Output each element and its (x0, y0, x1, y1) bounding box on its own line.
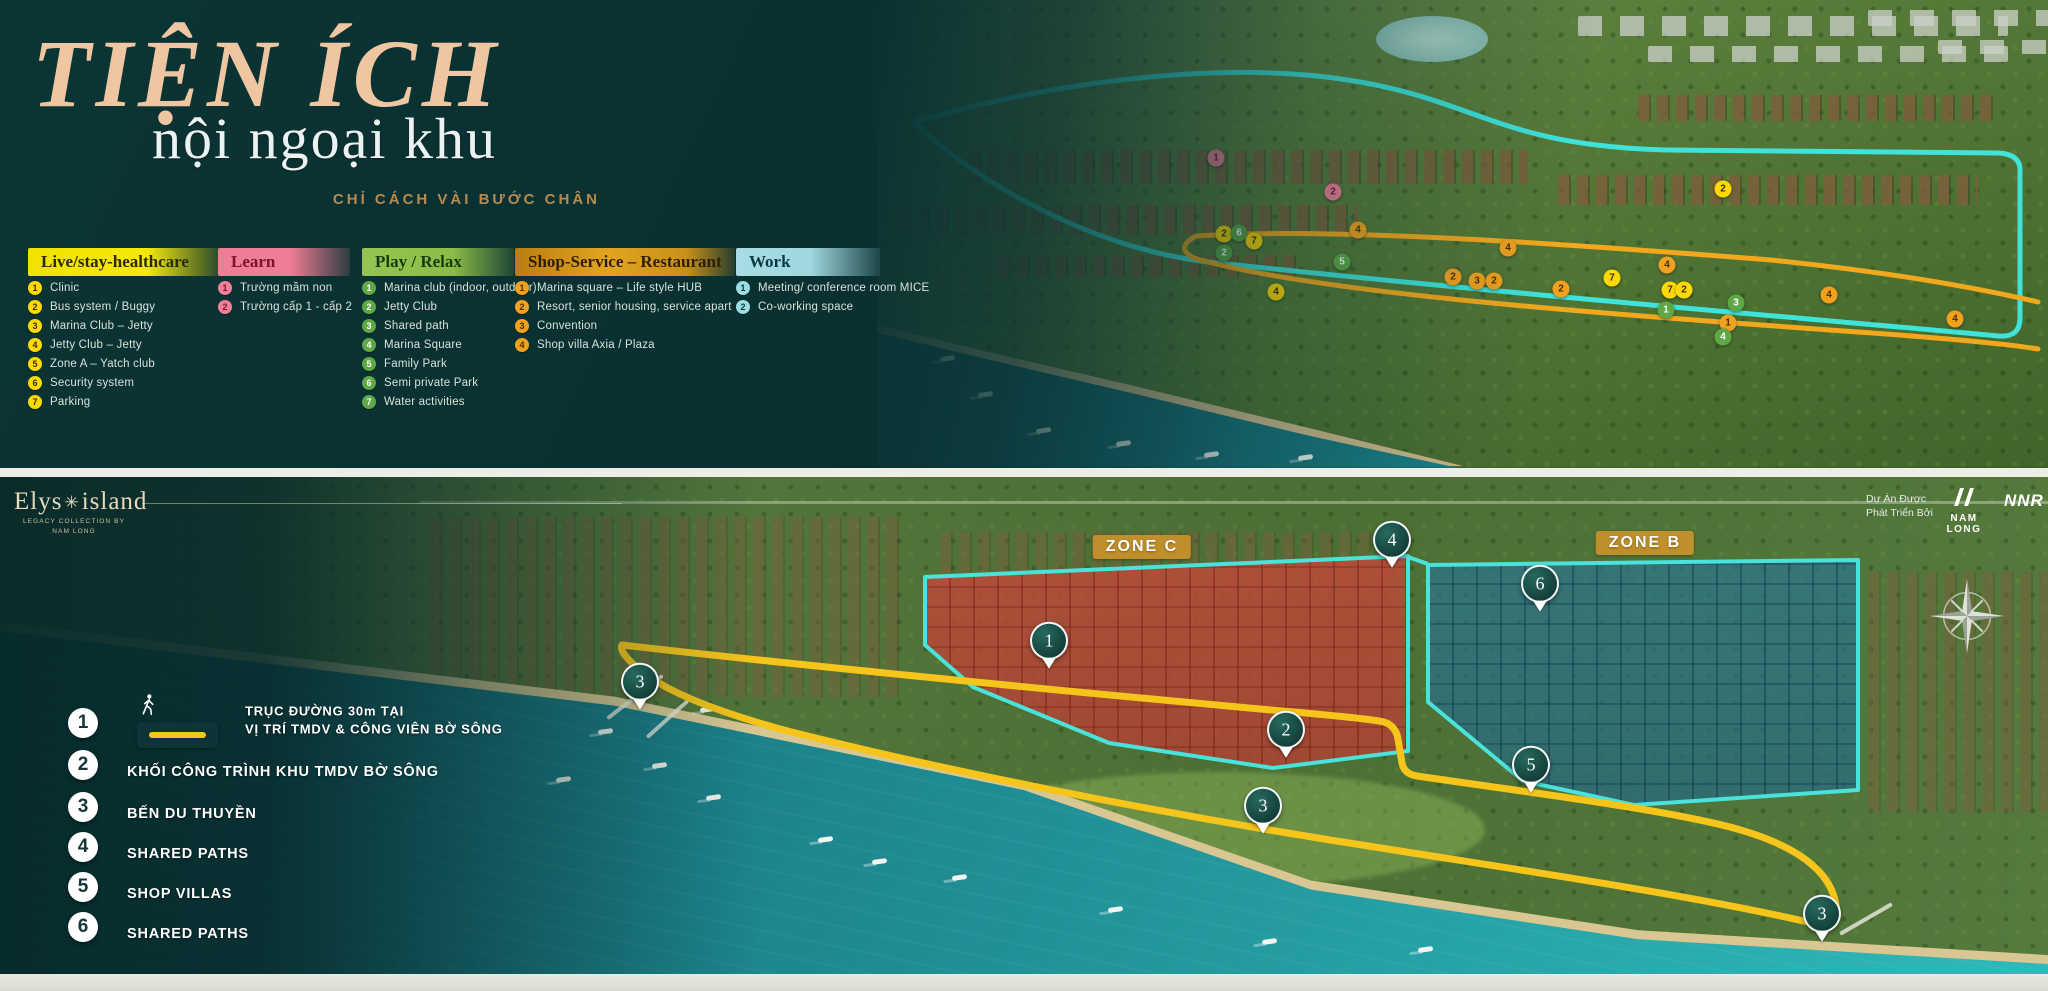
map-marker: 2 (1486, 273, 1503, 290)
legend-item-number: 3 (362, 319, 376, 333)
legend-item: 7Water activities (362, 395, 514, 409)
zone-c-badge: ZONE C (1093, 535, 1191, 559)
legend-item-label: Marina Club – Jetty (50, 320, 153, 332)
legend-item: 3Shared path (362, 319, 514, 333)
legend-item: 6Security system (28, 376, 220, 390)
nam-long-logo: NAM LONG (1932, 487, 1996, 535)
map-pin-tail (1524, 782, 1538, 793)
zone-c-outline (925, 556, 1408, 768)
nam-long-logo-icon (1951, 487, 1977, 507)
map-pin-number: 1 (1030, 622, 1068, 660)
legend-item: 4Marina Square (362, 338, 514, 352)
bottom-legend-number: 6 (68, 912, 98, 942)
project-logo-name: Elys✳island (14, 489, 147, 514)
page-subtitle: nội ngoại khu (152, 110, 497, 168)
legend-item: 4Jetty Club – Jetty (28, 338, 220, 352)
map-marker: 2 (1216, 245, 1233, 262)
bottom-legend-number: 4 (68, 832, 98, 862)
bottom-legend-number: 5 (68, 872, 98, 902)
legend-item-label: Family Park (384, 358, 447, 370)
map-marker: 2 (1325, 184, 1342, 201)
legend-item: 2Resort, senior housing, service apart (515, 300, 735, 314)
bottom-legend-label: TRỤC ĐƯỜNG 30m TẠIVỊ TRÍ TMDV & CÔNG VIÊ… (245, 703, 503, 738)
bottom-legend-label: BẾN DU THUYỀN (127, 806, 257, 822)
legend-item-label: Jetty Club – Jetty (50, 339, 142, 351)
legend-item-number: 4 (28, 338, 42, 352)
map-marker: 5 (1334, 254, 1351, 271)
developer-credit: Dự Án Được Phát Triển Bởi (1866, 493, 1933, 520)
map-pin-tail (1815, 931, 1829, 942)
footer-strip (0, 974, 2048, 991)
legend-item-label: Zone A – Yatch club (50, 358, 155, 370)
masterplan-panel: ZONE C ZONE B 46132353 Elys✳island LEGAC… (0, 477, 2048, 974)
legend-category-play-relax: Play / Relax1Marina club (indoor, outdoo… (362, 248, 514, 409)
map-marker: 4 (1947, 311, 1964, 328)
sun-logo-icon: ✳ (64, 494, 79, 511)
map-marker: 2 (1553, 281, 1570, 298)
legend-category-header: Learn (218, 248, 350, 276)
legend-item: 3Convention (515, 319, 735, 333)
legend-item-number: 2 (28, 300, 42, 314)
legend-item-number: 4 (362, 338, 376, 352)
legend-item-label: Marina club (indoor, outdoor) (384, 282, 537, 294)
legend-item: 2Trường cấp 1 - cấp 2 (218, 300, 350, 314)
route-color-swatch (137, 722, 218, 748)
map-pin-tail (1385, 557, 1399, 568)
map-marker: 2 (1445, 269, 1462, 286)
legend-item: 1Trường mầm non (218, 281, 350, 295)
legend-item-label: Meeting/ conference room MICE (758, 282, 929, 294)
legend-item: 4Shop villa Axia / Plaza (515, 338, 735, 352)
legend-item-label: Trường mầm non (240, 282, 332, 294)
yellow-route-path (621, 645, 1836, 924)
legend-item-label: Shop villa Axia / Plaza (537, 339, 655, 351)
map-marker: 4 (1659, 257, 1676, 274)
legend-category-header: Shop-Service – Restaurant (515, 248, 735, 276)
legend-item-number: 4 (515, 338, 529, 352)
legend-item-number: 6 (28, 376, 42, 390)
map-pin: 1 (1030, 622, 1068, 669)
legend-item-label: Clinic (50, 282, 79, 294)
legend-category-live-stay-healthcare: Live/stay-healthcare1Clinic2Bus system /… (28, 248, 220, 409)
legend-item: 5Zone A – Yatch club (28, 357, 220, 371)
overview-aerial-map: 1226724542324272472131444 (878, 0, 2048, 469)
legend-category-header: Work (736, 248, 880, 276)
legend-item-number: 3 (28, 319, 42, 333)
cyan-route-path (914, 72, 2020, 336)
legend-item-label: Co-working space (758, 301, 853, 313)
map-pin: 4 (1373, 521, 1411, 568)
map-pin-tail (633, 699, 647, 710)
zone-top-connector (1408, 557, 1428, 564)
map-pin: 3 (621, 663, 659, 710)
legend-item: 2Jetty Club (362, 300, 514, 314)
map-pin: 3 (1244, 787, 1282, 834)
zone-b-outline (1428, 560, 1858, 805)
legend-item-label: Trường cấp 1 - cấp 2 (240, 301, 352, 313)
map-marker: 2 (1715, 181, 1732, 198)
panel-divider (0, 468, 2048, 477)
map-pin-number: 3 (1803, 895, 1841, 933)
legend-item-number: 1 (218, 281, 232, 295)
legend-item-number: 7 (28, 395, 42, 409)
legend-item: 1Meeting/ conference room MICE (736, 281, 880, 295)
route-lines (878, 0, 2048, 469)
map-pin-tail (1533, 601, 1547, 612)
legend-item: 3Marina Club – Jetty (28, 319, 220, 333)
bottom-legend-label: SHARED PATHS (127, 926, 249, 942)
yellow-route-sample (149, 732, 206, 738)
page-title: TIỆN ÍCH (32, 26, 501, 122)
map-pin-number: 5 (1512, 746, 1550, 784)
map-marker: 4 (1350, 222, 1367, 239)
yellow-route-path (1184, 233, 2038, 349)
legend-item-number: 1 (362, 281, 376, 295)
map-pin-tail (1279, 747, 1293, 758)
legend-item: 6Semi private Park (362, 376, 514, 390)
map-pin-number: 2 (1267, 711, 1305, 749)
legend-item-label: Resort, senior housing, service apart (537, 301, 732, 313)
map-pin-number: 3 (1244, 787, 1282, 825)
bottom-legend-label: SHOP VILLAS (127, 886, 232, 902)
compass-rose (1928, 577, 2006, 655)
zone-b-badge: ZONE B (1596, 531, 1694, 555)
legend-item: 2Co-working space (736, 300, 880, 314)
bottom-legend-number: 1 (68, 708, 98, 738)
project-logo-tagline: LEGACY COLLECTION BY NAM LONG (14, 517, 134, 537)
legend-item-number: 2 (736, 300, 750, 314)
legend-item-number: 6 (362, 376, 376, 390)
bottom-legend-label: SHARED PATHS (127, 846, 249, 862)
title-block: TIỆN ÍCH nội ngoại khu CHỈ CÁCH VÀI BƯỚC… (0, 0, 700, 230)
legend-item-number: 2 (362, 300, 376, 314)
map-pin-number: 6 (1521, 565, 1559, 603)
legend-item: 2Bus system / Buggy (28, 300, 220, 314)
legend-item: 5Family Park (362, 357, 514, 371)
map-pin: 6 (1521, 565, 1559, 612)
legend-item-number: 2 (218, 300, 232, 314)
map-marker: 4 (1500, 240, 1517, 257)
legend-item-number: 5 (362, 357, 376, 371)
map-pin-tail (1256, 823, 1270, 834)
legend-item: 1Marina square – Life style HUB (515, 281, 735, 295)
nnr-logo: NNR (2004, 491, 2044, 511)
legend-item-number: 1 (28, 281, 42, 295)
legend-item-number: 5 (28, 357, 42, 371)
amenities-masterplan-poster: 1226724542324272472131444 TIỆN ÍCH nội n… (0, 0, 2048, 991)
legend-item: 7Parking (28, 395, 220, 409)
legend-category-header: Live/stay-healthcare (28, 248, 220, 276)
logo-divider-line (142, 503, 622, 504)
legend-category-learn: Learn1Trường mầm non2Trường cấp 1 - cấp … (218, 248, 350, 314)
legend-item-label: Water activities (384, 396, 465, 408)
pedestrian-icon (140, 693, 156, 722)
map-marker: 2 (1676, 282, 1693, 299)
legend-item-label: Semi private Park (384, 377, 478, 389)
map-pin: 5 (1512, 746, 1550, 793)
map-pin-number: 4 (1373, 521, 1411, 559)
map-marker: 1 (1658, 302, 1675, 319)
legend-category-work: Work1Meeting/ conference room MICE2Co-wo… (736, 248, 880, 314)
map-marker: 4 (1821, 287, 1838, 304)
legend-item-number: 1 (736, 281, 750, 295)
legend-item-label: Security system (50, 377, 134, 389)
legend-item-label: Jetty Club (384, 301, 437, 313)
legend-item-label: Marina Square (384, 339, 462, 351)
map-pin-tail (1042, 658, 1056, 669)
bottom-legend-label: KHỐI CÔNG TRÌNH KHU TMDV BỜ SÔNG (127, 764, 439, 780)
legend-item-number: 7 (362, 395, 376, 409)
map-marker: 7 (1246, 233, 1263, 250)
legend-category-shop-service-restaurant: Shop-Service – Restaurant1Marina square … (515, 248, 735, 352)
map-marker: 4 (1268, 284, 1285, 301)
bottom-legend-number: 2 (68, 750, 98, 780)
legend-item-label: Marina square – Life style HUB (537, 282, 702, 294)
map-marker: 4 (1715, 329, 1732, 346)
legend-item-label: Convention (537, 320, 597, 332)
legend-item: 1Marina club (indoor, outdoor) (362, 281, 514, 295)
legend-item-number: 2 (515, 300, 529, 314)
legend-item-label: Bus system / Buggy (50, 301, 155, 313)
nam-long-logo-text: NAM LONG (1932, 513, 1996, 535)
map-pin: 2 (1267, 711, 1305, 758)
project-logo: Elys✳island LEGACY COLLECTION BY NAM LON… (14, 489, 147, 537)
legend-item: 1Clinic (28, 281, 220, 295)
legend-item-label: Shared path (384, 320, 449, 332)
map-marker: 7 (1604, 270, 1621, 287)
legend-item-number: 1 (515, 281, 529, 295)
bottom-legend-number: 3 (68, 792, 98, 822)
map-marker: 1 (1208, 150, 1225, 167)
map-marker: 3 (1469, 273, 1486, 290)
legend-item-number: 3 (515, 319, 529, 333)
legend-category-header: Play / Relax (362, 248, 514, 276)
map-marker: 3 (1728, 295, 1745, 312)
map-pin: 3 (1803, 895, 1841, 942)
legend-item-label: Parking (50, 396, 90, 408)
map-pin-number: 3 (621, 663, 659, 701)
page-tagline: CHỈ CÁCH VÀI BƯỚC CHÂN (300, 191, 600, 208)
